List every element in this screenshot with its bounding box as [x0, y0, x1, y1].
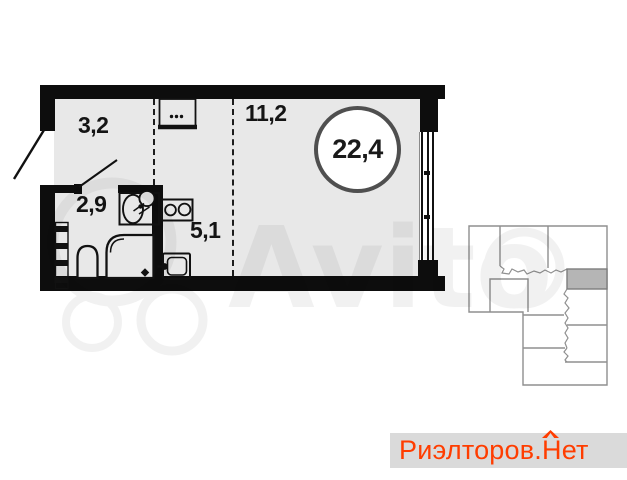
watermark-circle	[141, 289, 203, 351]
wall-bottom	[40, 276, 445, 291]
window	[420, 132, 438, 260]
brand-text: Риэлторов.Нет	[399, 435, 589, 466]
wall-left-upper	[40, 85, 55, 131]
room-area-label-hallway: 3,2	[78, 112, 108, 139]
wall-bathroom-right	[152, 185, 163, 276]
window-pane-line	[421, 132, 423, 260]
brand-strip: Риэлторов.Нет	[390, 433, 627, 468]
window-tick	[424, 215, 430, 219]
window-pane-line	[432, 132, 434, 260]
zone-divider-kitchen-living	[232, 99, 234, 276]
apartment-floorplan: 3,2 2,9 5,1 11,2 22,4	[40, 85, 445, 291]
wall-right-upper	[420, 99, 438, 132]
brand-suffix: ет	[562, 435, 589, 466]
wall-bathroom-top	[40, 185, 80, 193]
window-tick	[424, 171, 430, 175]
floorplan-image: 3,2 2,9 5,1 11,2 22,4	[0, 0, 627, 480]
brand-letter-n: Н	[542, 435, 562, 466]
watermark-circle	[66, 296, 118, 348]
window-pane-line	[427, 132, 429, 260]
building-position-inset	[468, 225, 608, 386]
brand-letter-n-glyph: Н	[542, 435, 562, 465]
room-area-label-living-room: 11,2	[245, 100, 287, 127]
zone-divider-hallway-kitchen	[153, 99, 155, 185]
wall-top	[40, 85, 445, 99]
brand-prefix: Риэлторов.	[399, 435, 542, 466]
room-area-label-bathroom: 2,9	[76, 191, 106, 218]
room-area-label-kitchen: 5,1	[190, 217, 220, 244]
total-area-badge: 22,4	[314, 106, 401, 193]
total-area-value: 22,4	[332, 134, 383, 165]
wall-right-lower	[418, 260, 438, 276]
highlighted-unit	[567, 269, 607, 289]
